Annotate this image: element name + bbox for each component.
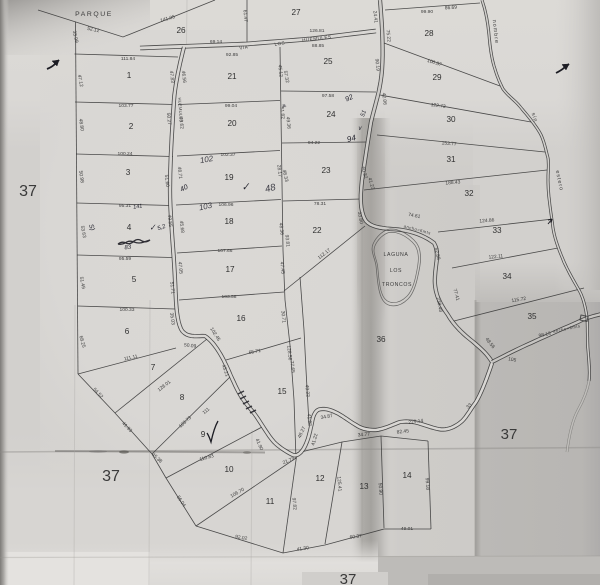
svg-text:94.22: 94.22 <box>308 140 321 146</box>
svg-text:103.58: 103.58 <box>222 294 237 300</box>
svg-text:36: 36 <box>376 335 386 344</box>
svg-text:9: 9 <box>201 430 206 439</box>
svg-text:30: 30 <box>446 115 456 124</box>
svg-text:95.59: 95.59 <box>119 256 132 262</box>
svg-text:12: 12 <box>315 474 325 483</box>
svg-text:32: 32 <box>464 189 474 198</box>
svg-text:88.85: 88.85 <box>312 43 325 49</box>
svg-text:22: 22 <box>312 226 322 235</box>
svg-text:100.24: 100.24 <box>118 151 133 157</box>
svg-text:92.85: 92.85 <box>226 52 239 58</box>
svg-text:LAGUNA: LAGUNA <box>384 252 409 258</box>
svg-text:28: 28 <box>424 29 434 38</box>
svg-text:125.41: 125.41 <box>335 476 342 492</box>
svg-text:33: 33 <box>492 226 502 235</box>
svg-text:97.58: 97.58 <box>322 93 335 99</box>
svg-text:7: 7 <box>151 363 156 372</box>
svg-text:78.31: 78.31 <box>314 201 327 207</box>
svg-text:31: 31 <box>446 155 456 164</box>
svg-text:29: 29 <box>432 73 442 82</box>
svg-text:37: 37 <box>501 426 518 443</box>
svg-text:21: 21 <box>227 72 237 81</box>
svg-text:126.81: 126.81 <box>310 28 325 34</box>
svg-text:24: 24 <box>326 110 336 119</box>
svg-text:3: 3 <box>126 168 131 177</box>
svg-text:34.77: 34.77 <box>358 431 371 438</box>
svg-text:69.14: 69.14 <box>210 39 223 45</box>
svg-text:6: 6 <box>125 327 130 336</box>
svg-text:35: 35 <box>527 312 537 321</box>
svg-text:23: 23 <box>321 166 331 175</box>
svg-text:106.96: 106.96 <box>219 202 234 208</box>
svg-text:19: 19 <box>224 173 234 182</box>
svg-text:153.77: 153.77 <box>441 140 457 147</box>
svg-text:103.77: 103.77 <box>119 103 134 109</box>
svg-text:16: 16 <box>236 314 246 323</box>
svg-text:4: 4 <box>127 223 132 232</box>
svg-text:26: 26 <box>176 26 186 35</box>
svg-text:15: 15 <box>277 387 287 396</box>
svg-text:86.69: 86.69 <box>445 5 458 12</box>
svg-text:99.04: 99.04 <box>225 103 238 109</box>
svg-text:5: 5 <box>132 275 137 284</box>
svg-text:99.90: 99.90 <box>421 9 434 15</box>
svg-text:111.84: 111.84 <box>121 56 136 62</box>
svg-text:99.18: 99.18 <box>424 478 431 491</box>
svg-text:107.66: 107.66 <box>218 248 233 254</box>
svg-text:20: 20 <box>227 119 237 128</box>
svg-text:37: 37 <box>340 571 357 585</box>
svg-text:49.01: 49.01 <box>401 526 414 532</box>
svg-text:18: 18 <box>224 217 234 226</box>
svg-text:102.37: 102.37 <box>221 152 236 158</box>
svg-text:27: 27 <box>291 8 301 17</box>
svg-text:17: 17 <box>225 265 235 274</box>
svg-text:8: 8 <box>180 393 185 402</box>
svg-text:TRONCOS: TRONCOS <box>382 282 412 288</box>
svg-text:14: 14 <box>402 471 412 480</box>
svg-text:LOS: LOS <box>390 268 402 274</box>
svg-text:34: 34 <box>502 272 512 281</box>
svg-text:25: 25 <box>323 57 333 66</box>
svg-text:10: 10 <box>224 465 234 474</box>
svg-text:83: 83 <box>124 245 132 252</box>
svg-text:95.31: 95.31 <box>119 203 132 209</box>
svg-text:1: 1 <box>127 71 132 80</box>
svg-text:50.90: 50.90 <box>377 483 384 496</box>
svg-text:PARQUE: PARQUE <box>75 11 113 18</box>
svg-text:2: 2 <box>129 122 134 131</box>
svg-text:37: 37 <box>19 183 37 200</box>
svg-text:13: 13 <box>359 482 369 491</box>
svg-text:61.47: 61.47 <box>241 10 248 23</box>
svg-text:100.33: 100.33 <box>120 307 135 313</box>
svg-text:11: 11 <box>266 497 275 506</box>
svg-text:37: 37 <box>102 468 120 485</box>
